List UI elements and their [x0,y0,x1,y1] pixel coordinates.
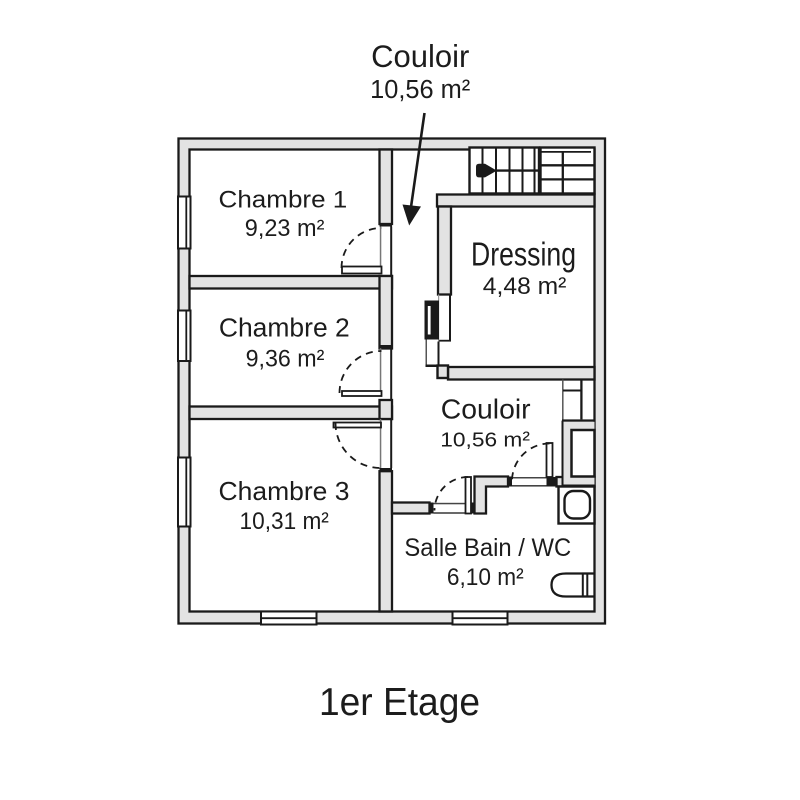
svg-text:Couloir: Couloir [441,394,531,425]
svg-text:9,36 m²: 9,36 m² [246,345,325,372]
svg-text:1er Etage: 1er Etage [319,681,480,724]
svg-text:10,31 m²: 10,31 m² [240,508,329,535]
svg-text:9,23 m²: 9,23 m² [245,216,325,242]
svg-text:10,56 m²: 10,56 m² [370,74,470,104]
svg-text:Chambre 1: Chambre 1 [219,186,348,213]
svg-text:6,10 m²: 6,10 m² [447,564,524,591]
svg-text:Salle Bain / WC: Salle Bain / WC [404,535,571,562]
svg-text:Chambre 3: Chambre 3 [219,478,350,506]
svg-text:Dressing: Dressing [471,236,576,273]
svg-text:Couloir: Couloir [371,39,469,74]
svg-text:Chambre 2: Chambre 2 [219,315,350,343]
svg-text:10,56 m²: 10,56 m² [440,429,530,452]
svg-text:4,48 m²: 4,48 m² [483,273,567,300]
